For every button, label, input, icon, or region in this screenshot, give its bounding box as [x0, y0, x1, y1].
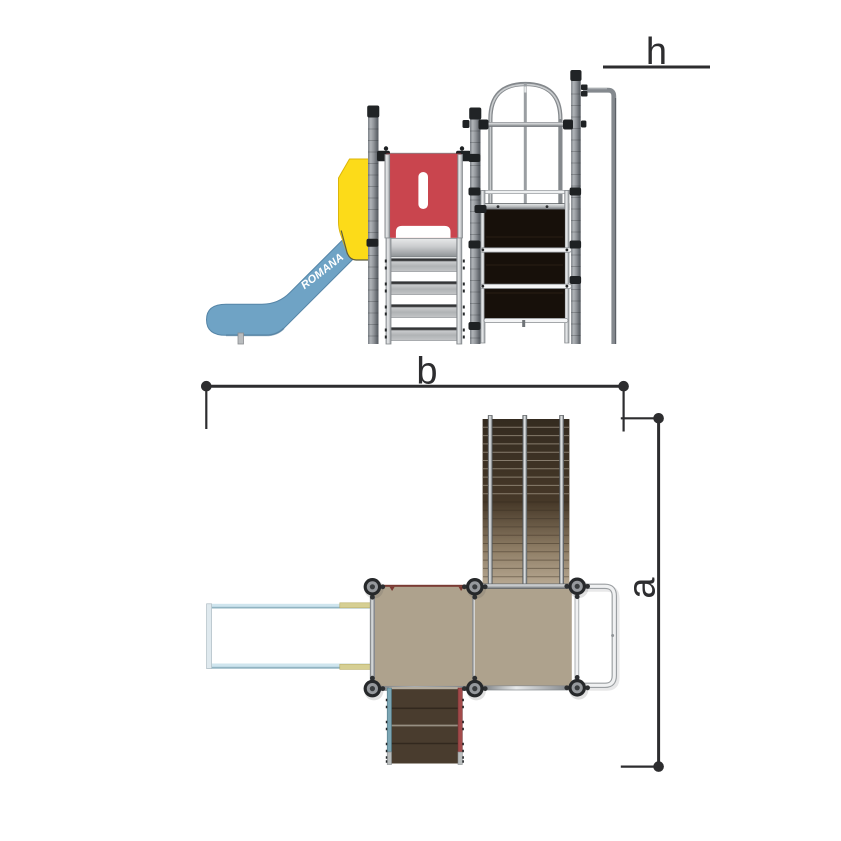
svg-text:a: a — [622, 577, 664, 599]
svg-text:b: b — [416, 351, 437, 393]
svg-text:h: h — [646, 31, 667, 73]
